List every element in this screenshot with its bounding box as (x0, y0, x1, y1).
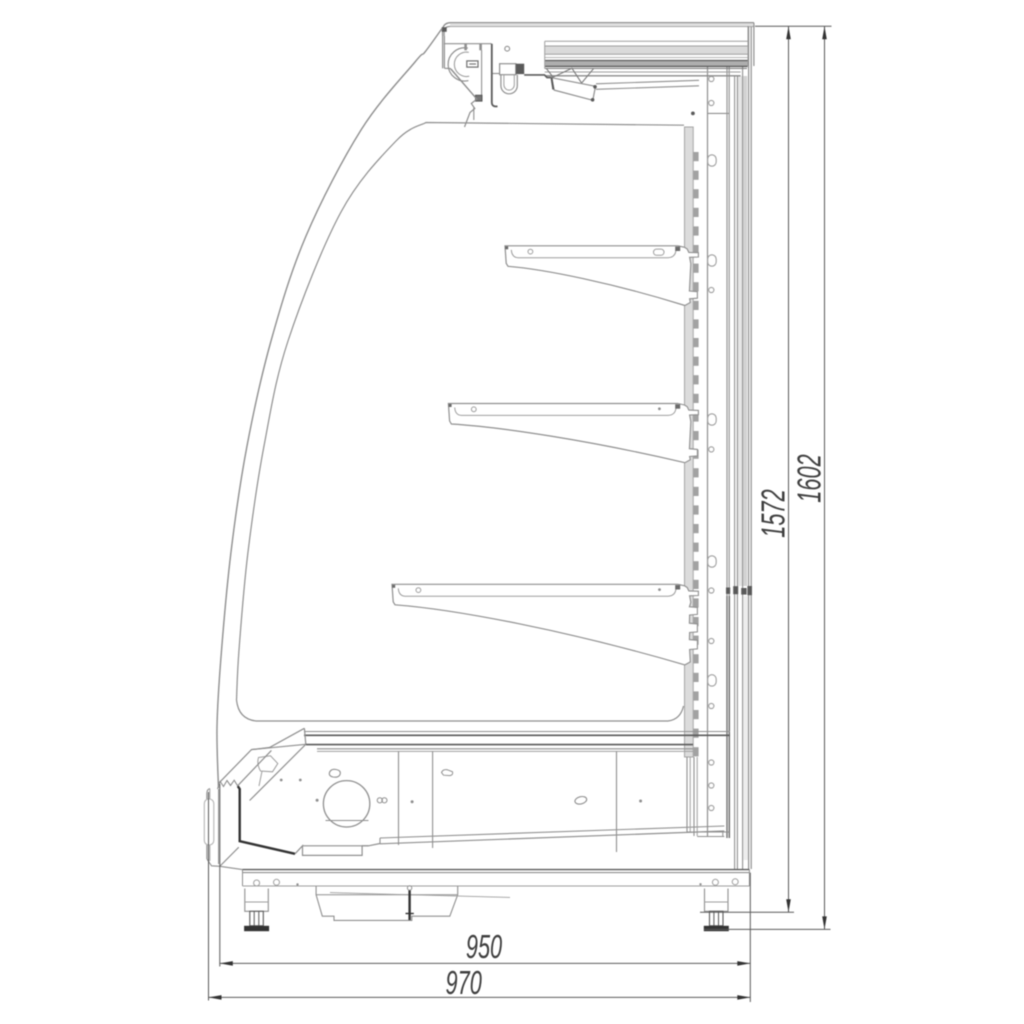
svg-text:1602: 1602 (791, 454, 828, 503)
svg-text:950: 950 (466, 928, 503, 965)
svg-text:970: 970 (446, 964, 483, 1001)
svg-text:1572: 1572 (755, 489, 792, 538)
